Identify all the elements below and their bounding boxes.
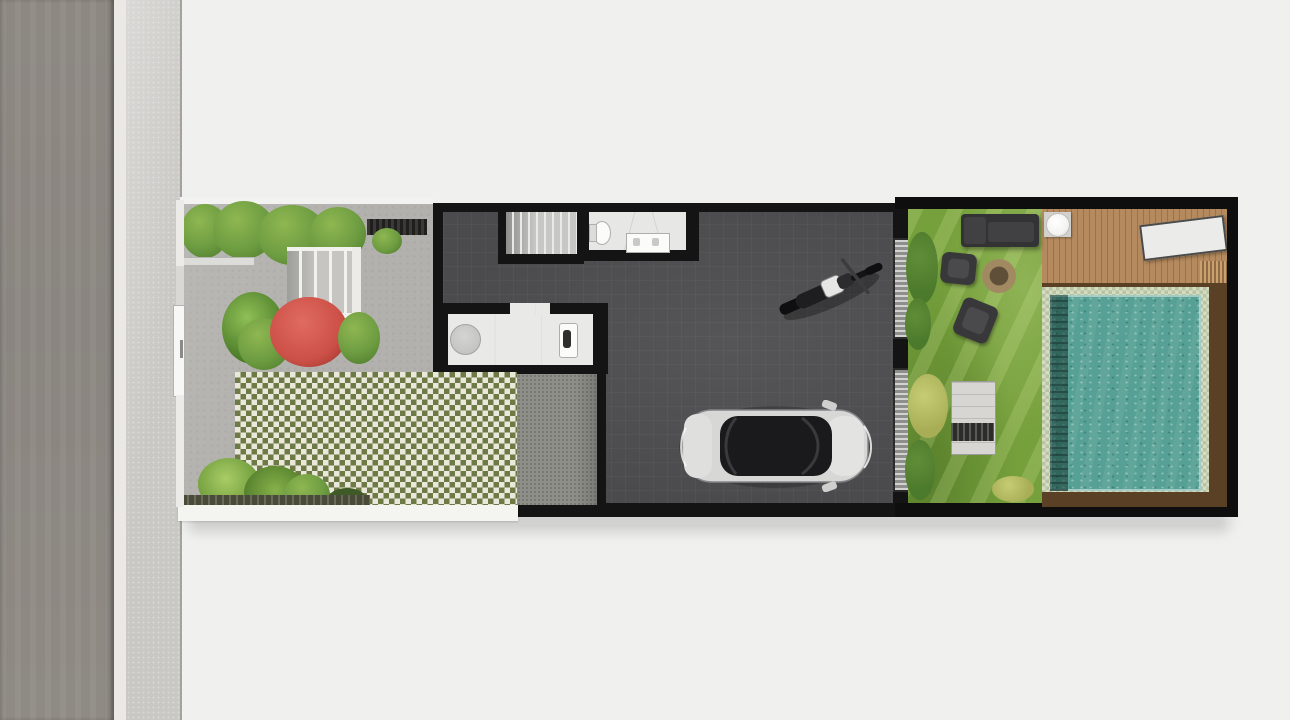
road: [0, 0, 114, 720]
front-planter-wall: [178, 505, 518, 521]
pool-ledge: [1050, 295, 1068, 491]
front-fence-bottom: [176, 395, 184, 507]
vanity-sink-left: [633, 238, 640, 246]
kitchen-door-opening: [510, 303, 550, 315]
stair-bottom-wall: [498, 254, 584, 264]
garden-bench-table: [951, 381, 996, 455]
bench-bush: [372, 228, 402, 254]
planter-green-bush: [338, 312, 380, 364]
round-deck-table: [1046, 213, 1070, 237]
pool-water: [1050, 295, 1201, 491]
backyard-shrub-yellow: [908, 374, 948, 438]
red-flowering-bush: [270, 297, 348, 367]
steps-top-edge: [287, 247, 353, 251]
service-yard: [517, 374, 597, 505]
steps-side-wall: [352, 247, 361, 318]
car: [676, 400, 874, 492]
backyard-right-wall: [1227, 197, 1238, 517]
backyard-shrub-1: [906, 232, 938, 304]
toilet-tank: [589, 224, 597, 242]
front-top-wall: [180, 197, 433, 204]
backyard-shrub-4: [992, 476, 1034, 502]
front-fence-mid: [176, 266, 184, 307]
hedge-planter-edge: [183, 257, 255, 266]
curb: [114, 0, 126, 720]
sofa-chaise-cushion: [964, 217, 986, 244]
sofa-seat-cushion: [988, 222, 1034, 242]
front-gate: [173, 305, 185, 397]
site-plan-rendering: [0, 0, 1290, 720]
motorcycle-body: [772, 246, 890, 328]
backyard-shrub-2: [905, 298, 931, 350]
backyard-top-wall: [895, 197, 1237, 209]
kitchen-sink-basin: [563, 330, 571, 348]
fire-pit: [982, 259, 1016, 293]
backyard-shrub-3: [905, 440, 935, 500]
house-top-wall: [433, 203, 910, 212]
backyard-bottom-wall-right: [1042, 507, 1238, 517]
vanity-sink-right: [652, 238, 659, 246]
house-bottom-wall: [517, 503, 910, 517]
pool-surround-bottom: [1042, 492, 1227, 507]
staircase: [506, 212, 580, 256]
bench-slat-band: [951, 423, 994, 441]
front-fence-top: [176, 200, 184, 266]
armchair-1-cushion: [947, 258, 970, 279]
motorcycle: [772, 246, 890, 330]
kitchen-round-table: [450, 324, 481, 355]
gate-handle: [180, 340, 183, 358]
service-yard-right-wall: [597, 374, 606, 505]
